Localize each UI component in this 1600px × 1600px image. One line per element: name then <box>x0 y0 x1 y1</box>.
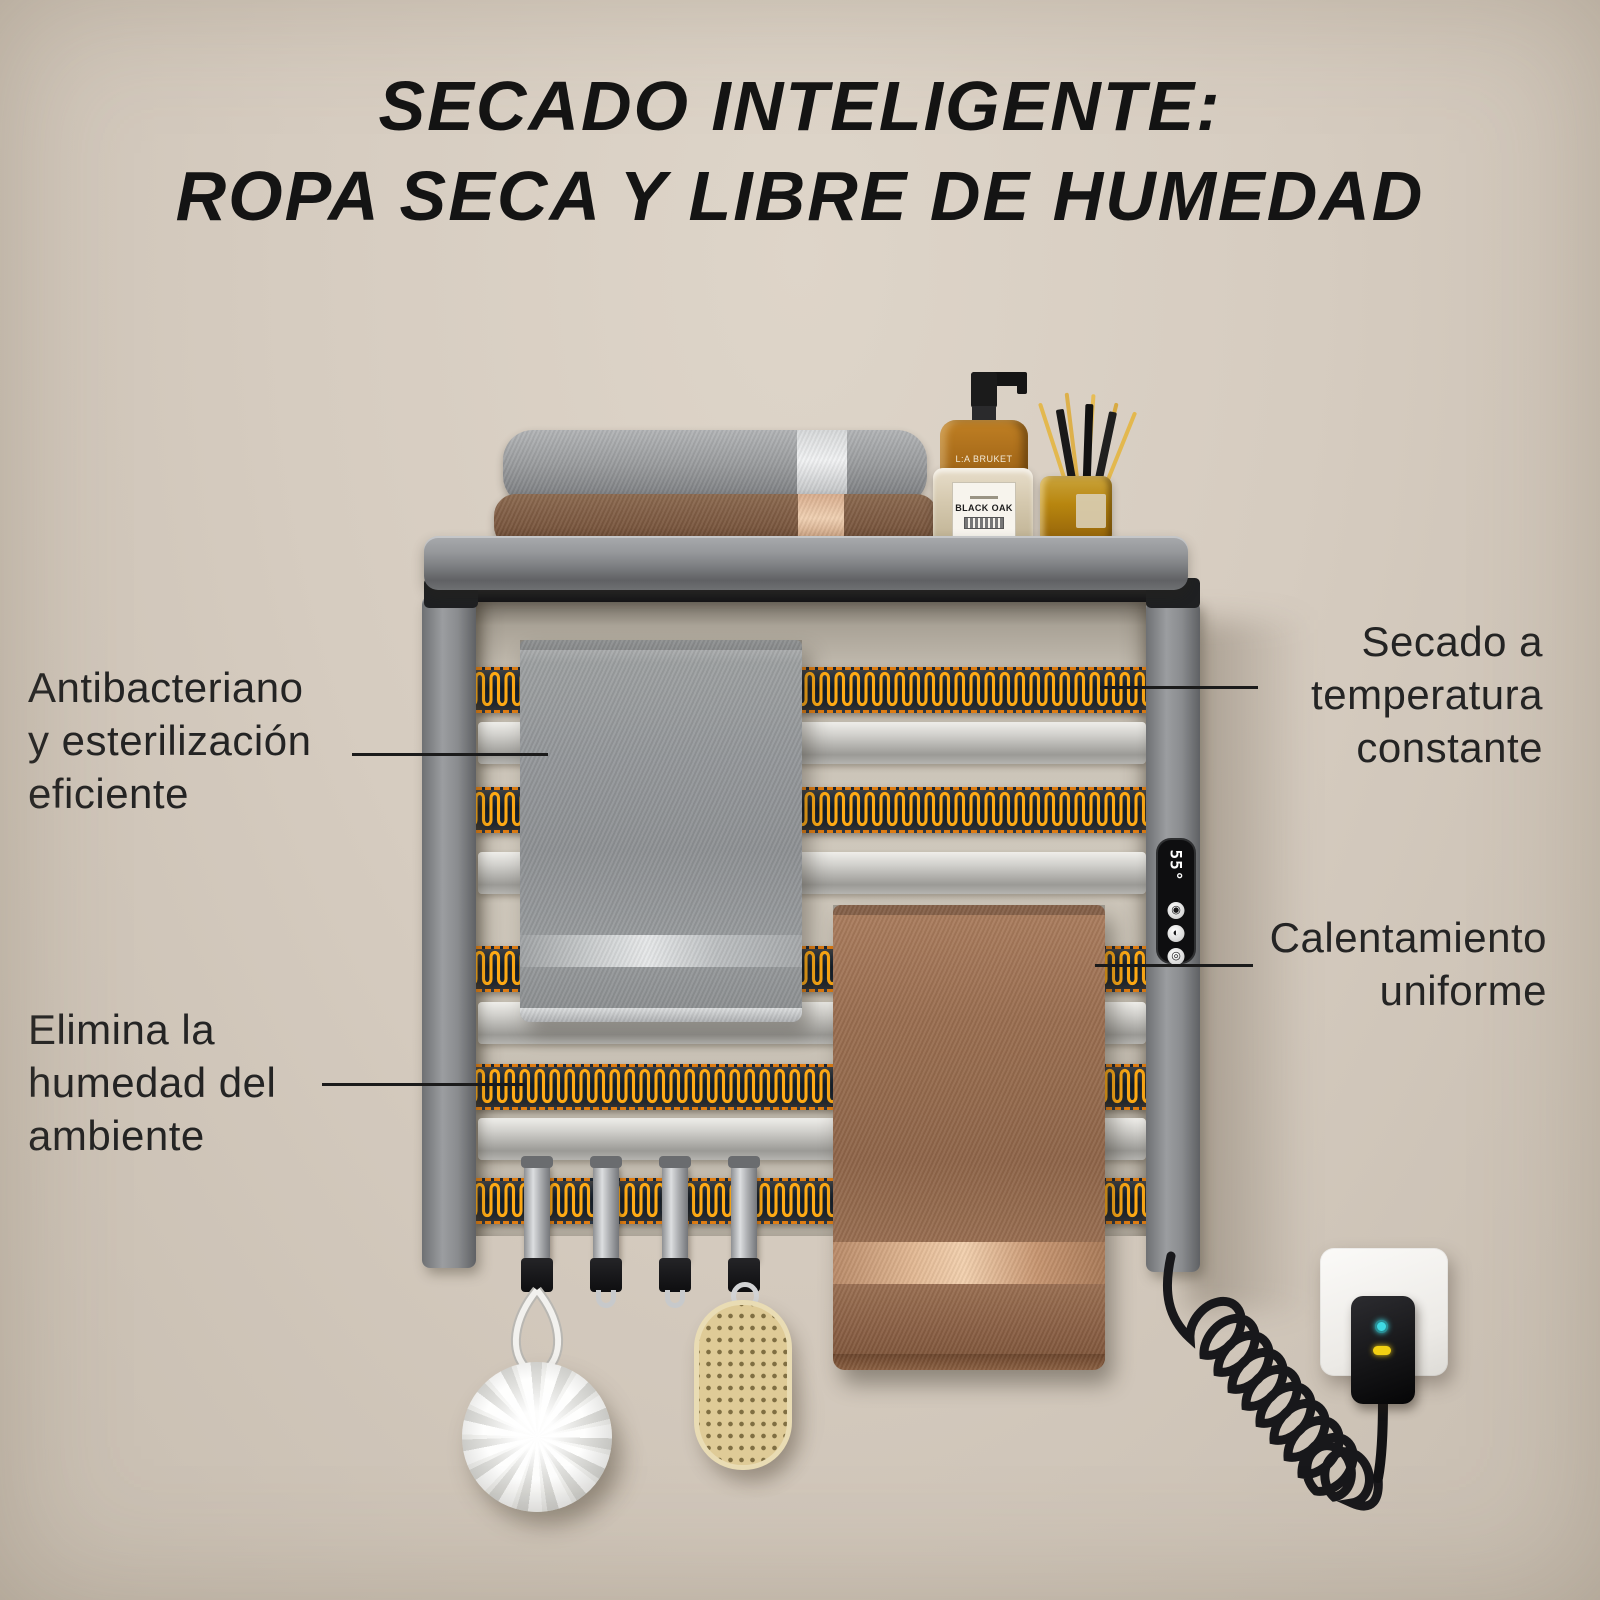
status-led-icon <box>1373 1346 1391 1355</box>
callout-constant-temp: Secado a temperatura constante <box>1213 616 1543 775</box>
towel-hook <box>524 1164 550 1260</box>
brown-towel <box>833 905 1105 1370</box>
callout-text: temperatura <box>1213 669 1543 722</box>
callout-uniform-heat: Calentamiento uniforme <box>1207 912 1547 1018</box>
product-infographic: SECADO INTELIGENTE: ROPA SECA Y LIBRE DE… <box>0 0 1600 1600</box>
mode-button-icon: ◐ <box>1168 925 1185 942</box>
callout-text: ambiente <box>28 1110 358 1163</box>
bath-scrubber <box>462 1362 612 1512</box>
soap-pump-stem <box>971 372 997 408</box>
label-rule <box>970 496 998 499</box>
bath-brush <box>694 1300 792 1470</box>
headline-line-2: ROPA SECA Y LIBRE DE HUMEDAD <box>0 152 1600 242</box>
towel-fold <box>520 640 802 650</box>
callout-line-humidity <box>322 1083 525 1086</box>
headline: SECADO INTELIGENTE: ROPA SECA Y LIBRE DE… <box>0 62 1600 241</box>
towel-hook <box>662 1164 688 1260</box>
towel-hem <box>520 1008 802 1022</box>
hook-curl <box>665 1290 685 1308</box>
headline-line-1: SECADO INTELIGENTE: <box>0 62 1600 152</box>
power-button-icon: ◉ <box>1168 902 1185 919</box>
callout-line-uniform-heat <box>1095 964 1253 967</box>
heat-button-icon: ◎ <box>1168 948 1185 965</box>
power-led-icon <box>1375 1320 1388 1333</box>
temperature-display: 55° <box>1167 848 1186 884</box>
callout-text: y esterilización <box>28 715 358 768</box>
bottle-label: BLACK OAK <box>952 482 1016 542</box>
hook-clip <box>659 1258 691 1292</box>
bottle-label-text: BLACK OAK <box>955 503 1013 513</box>
satin-band <box>520 935 802 967</box>
callout-text: Antibacteriano <box>28 662 358 715</box>
callout-humidity: Elimina la humedad del ambiente <box>28 1004 358 1163</box>
plug-cord <box>1378 1400 1383 1478</box>
callout-antibacterial: Antibacteriano y esterilización eficient… <box>28 662 358 821</box>
callout-text: eficiente <box>28 768 358 821</box>
label-fine-print <box>964 517 1004 529</box>
control-panel: 55° ◉ ◐ ◎ <box>1156 838 1196 964</box>
callout-text: constante <box>1213 722 1543 775</box>
smart-plug <box>1351 1296 1415 1404</box>
diffuser-label <box>1076 494 1106 528</box>
bottle-brand-text: L:A BRUKET <box>940 454 1028 464</box>
towel-hem <box>833 1354 1105 1370</box>
satin-band <box>833 1242 1105 1284</box>
towel-fold <box>833 905 1105 915</box>
hook-clip <box>521 1258 553 1292</box>
gray-towel <box>520 640 802 1022</box>
callout-line-constant-temp <box>1100 686 1258 689</box>
top-shelf <box>424 536 1188 590</box>
callout-text: uniforme <box>1207 965 1547 1018</box>
callout-text: Secado a <box>1213 616 1543 669</box>
hook-curl <box>596 1290 616 1308</box>
left-rail <box>422 596 476 1268</box>
towel-hook <box>593 1164 619 1260</box>
soap-pump-nozzle <box>1017 372 1027 394</box>
callout-text: Elimina la <box>28 1004 358 1057</box>
callout-line-antibacterial <box>352 753 548 756</box>
callout-text: humedad del <box>28 1057 358 1110</box>
hook-clip <box>590 1258 622 1292</box>
towel-hook <box>731 1164 757 1260</box>
callout-text: Calentamiento <box>1207 912 1547 965</box>
